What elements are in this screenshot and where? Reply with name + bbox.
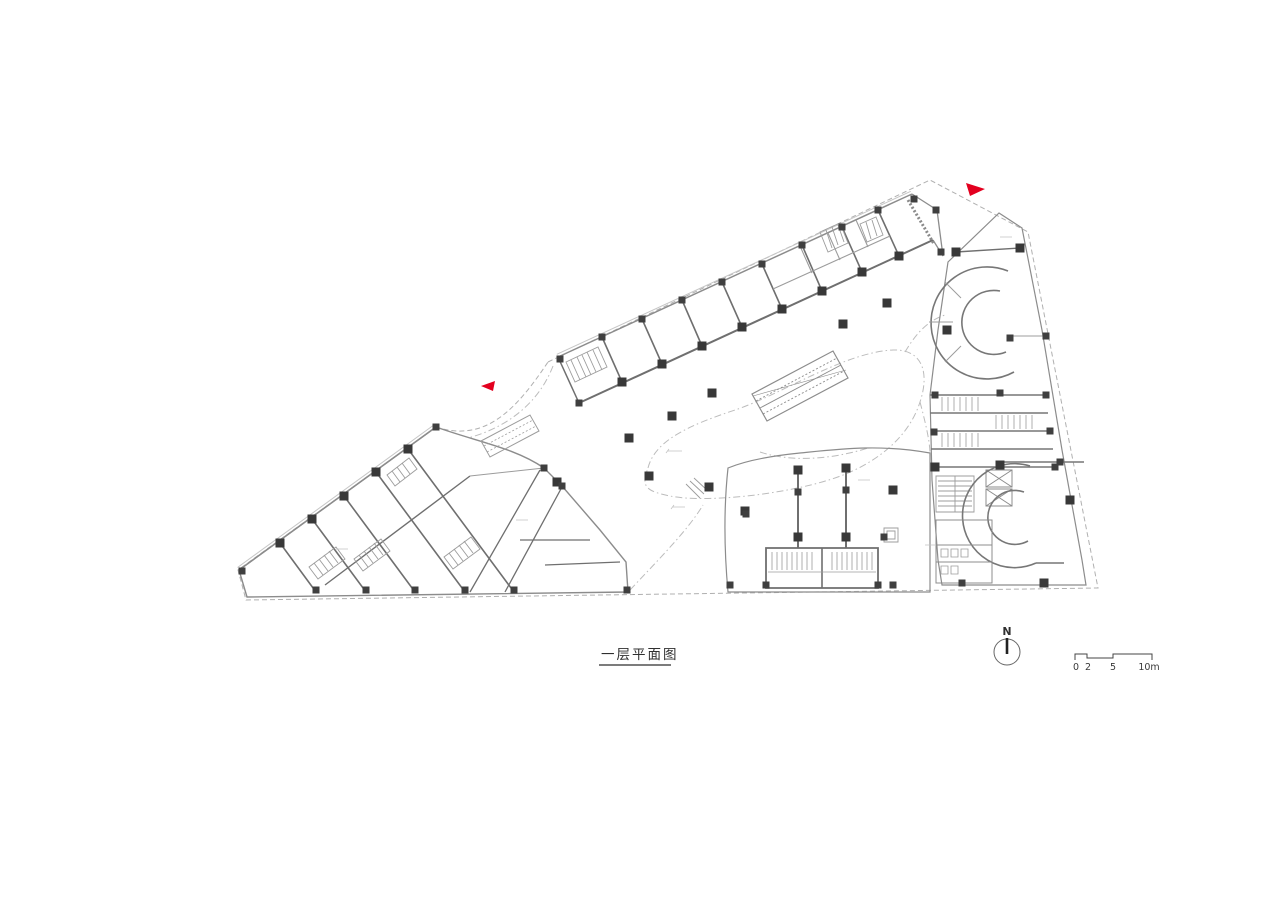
bottom-middle-block [725, 448, 930, 592]
scale-label-5: 5 [1110, 662, 1116, 673]
elevator-shafts [986, 470, 1012, 506]
plaza-escalator-bank [752, 351, 848, 421]
site-boundary [238, 180, 1098, 600]
north-arrow: N [994, 625, 1020, 665]
right-block [929, 213, 1086, 585]
upper-wing [557, 191, 943, 403]
plan-title: 一层平面图 [601, 647, 679, 663]
entrance-arrow-north [966, 183, 985, 196]
lower-curved-ramp [963, 462, 1084, 568]
scale-label-2: 2 [1085, 662, 1091, 673]
left-wing [238, 425, 629, 598]
floor-plan-drawing: 一层平面图 N 0 2 5 10m [0, 0, 1280, 904]
stair-lower-left [936, 476, 974, 512]
upper-curved-ramp [929, 267, 1046, 379]
page: 一层平面图 N 0 2 5 10m [0, 0, 1280, 904]
scale-label-10m: 10m [1138, 662, 1159, 673]
elevation-annotations [336, 237, 1012, 549]
title-block: 一层平面图 [599, 647, 679, 665]
entrance-arrow-west [481, 381, 495, 391]
scale-label-0: 0 [1073, 662, 1079, 673]
scale-bar: 0 2 5 10m [1073, 654, 1160, 673]
north-label: N [1002, 625, 1011, 638]
